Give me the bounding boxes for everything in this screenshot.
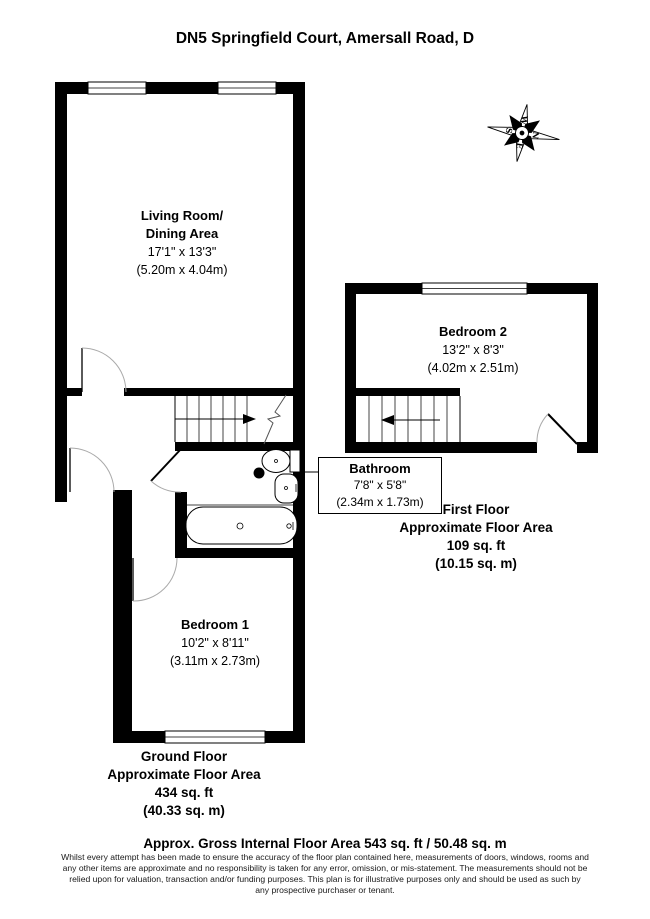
ground-floor-area-sqm: (40.33 sq. m)	[107, 802, 260, 820]
bathroom-fixtures	[186, 450, 300, 545]
first-floor-stairs	[369, 396, 460, 442]
disclaimer-line-3: relied upon for valuation, transaction a…	[61, 874, 589, 885]
bedroom2-dims-metric: (4.02m x 2.51m)	[427, 359, 518, 377]
plan-title: DN5 Springfield Court, Amersall Road, D	[176, 30, 474, 48]
bedroom1-name: Bedroom 1	[170, 616, 260, 634]
living-room-door	[82, 348, 126, 392]
living-room-name-line2: Dining Area	[136, 225, 227, 243]
bedroom2-dims-imperial: 13'2" x 8'3"	[427, 341, 518, 359]
compass-rose: N E S W	[482, 98, 564, 168]
ground-floor-area-caption: Approximate Floor Area	[107, 766, 260, 784]
living-room-window-1	[88, 82, 146, 94]
compass-e-label: E	[514, 142, 525, 150]
gross-area-summary: Approx. Gross Internal Floor Area 543 sq…	[143, 836, 506, 851]
bathroom-door	[151, 449, 181, 492]
disclaimer-line-2: any other items are approximate and no r…	[61, 863, 589, 874]
ground-floor-stairs	[175, 395, 286, 444]
toilet	[262, 450, 300, 473]
bedroom1-dims-metric: (3.11m x 2.73m)	[170, 652, 260, 670]
first-floor-title: First Floor	[399, 501, 552, 519]
ground-floor-title: Ground Floor	[107, 748, 260, 766]
soil-pipe-dot	[254, 468, 265, 479]
first-floor-area-sqm: (10.15 sq. m)	[399, 555, 552, 573]
living-room-window-2	[218, 82, 276, 94]
bathroom-dims-imperial: 7'8" x 5'8"	[319, 477, 441, 494]
bedroom2-door	[537, 414, 577, 444]
living-room-dims-metric: (5.20m x 4.04m)	[136, 261, 227, 279]
living-room-label: Living Room/ Dining Area 17'1" x 13'3" (…	[136, 207, 227, 279]
ground-floor-area-sqft: 434 sq. ft	[107, 784, 260, 802]
bedroom1-dims-imperial: 10'2" x 8'11"	[170, 634, 260, 652]
first-floor-area-label: First Floor Approximate Floor Area 109 s…	[399, 501, 552, 573]
stairs-up-arrow	[243, 414, 256, 424]
bedroom1-door	[133, 558, 177, 601]
living-room-dims-imperial: 17'1" x 13'3"	[136, 243, 227, 261]
floorplan-page: N E S W DN5 Springfield Court, Amersall …	[0, 0, 650, 919]
front-door	[70, 448, 114, 492]
stairs-down-arrow	[381, 415, 394, 425]
first-floor-area-caption: Approximate Floor Area	[399, 519, 552, 537]
bathtub	[186, 507, 297, 544]
bedroom2-label: Bedroom 2 13'2" x 8'3" (4.02m x 2.51m)	[427, 323, 518, 377]
ground-floor-area-label: Ground Floor Approximate Floor Area 434 …	[107, 748, 260, 820]
disclaimer-line-4: any prospective purchaser or tenant.	[61, 885, 589, 896]
bedroom1-label: Bedroom 1 10'2" x 8'11" (3.11m x 2.73m)	[170, 616, 260, 670]
bedroom1-window	[165, 731, 265, 743]
bedroom2-name: Bedroom 2	[427, 323, 518, 341]
sink	[275, 474, 298, 503]
disclaimer-text: Whilst every attempt has been made to en…	[61, 852, 589, 896]
living-room-name-line1: Living Room/	[136, 207, 227, 225]
disclaimer-line-1: Whilst every attempt has been made to en…	[61, 852, 589, 863]
bedroom2-window	[422, 283, 527, 294]
bathroom-name: Bathroom	[319, 460, 441, 477]
first-floor-area-sqft: 109 sq. ft	[399, 537, 552, 555]
